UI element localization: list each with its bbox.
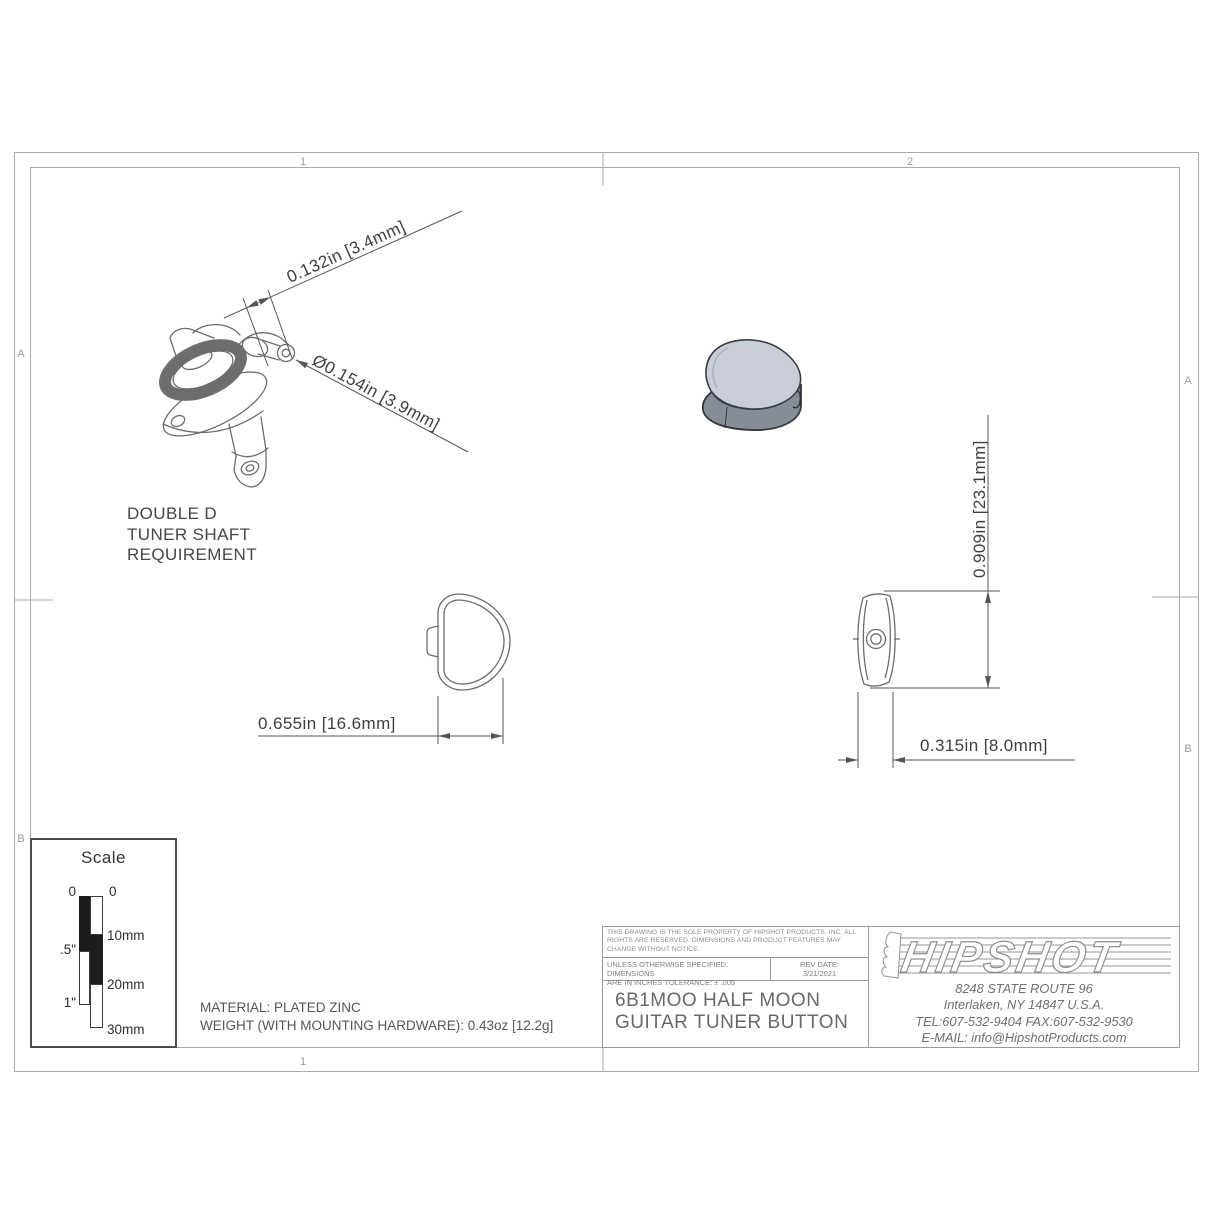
scale-label-mm-10: 10mm [107,928,145,943]
hipshot-logo-text: HIPSHOT [898,933,1124,981]
scale-mm-bar-20-30 [90,984,103,1028]
address-line-2: Interlaken, NY 14847 U.S.A. [869,997,1179,1013]
hipshot-logo: HIPSHOT [875,929,1175,981]
title-block-company: HIPSHOT 8248 STATE ROUTE 96 Interlaken, … [869,927,1179,1047]
isometric-view [703,340,801,430]
scale-label-inch-1: 1" [46,995,76,1010]
zone-label-left-b: B [17,833,24,845]
scale-label-mm-30: 30mm [107,1022,145,1037]
material-notes: MATERIAL: PLATED ZINC WEIGHT (WITH MOUNT… [200,999,553,1035]
company-address: 8248 STATE ROUTE 96 Interlaken, NY 14847… [869,981,1179,1047]
zone-label-right-a: A [1184,375,1192,387]
scale-mm-bar-0-10 [90,896,103,935]
scale-label-mm-0: 0 [109,884,117,899]
shaft-requirement-note: DOUBLE D TUNER SHAFT REQUIREMENT [127,504,257,566]
dim-text-shaft-diameter: Ø0.154in [3.9mm] [309,351,443,434]
dim-text-shaft-flat-width: 0.132in [3.4mm] [284,217,408,287]
dim-text-button-thickness: 0.315in [8.0mm] [920,736,1048,755]
scale-label-mm-20: 20mm [107,977,145,992]
scale-label-inch-half: .5" [40,942,76,957]
front-view [427,594,510,690]
tuner-sketch [150,325,294,487]
phone-line: TEL:607-532-9404 FAX:607-532-9530 [869,1014,1179,1030]
rev-date: REV DATE: 3/21/2021 [771,958,868,980]
legal-notice: THIS DRAWING IS THE SOLE PROPERTY OF HIP… [603,927,868,958]
title-block: THIS DRAWING IS THE SOLE PROPERTY OF HIP… [602,926,1180,1048]
address-line-1: 8248 STATE ROUTE 96 [869,981,1179,997]
spec-row: UNLESS OTHERWISE SPECIFIED: DIMENSIONS A… [603,958,868,981]
dim-shaft-flat-width: 0.132in [3.4mm] [224,211,462,366]
zone-label-bottom-1: 1 [300,1056,306,1068]
dim-text-button-length: 0.909in [23.1mm] [970,440,989,578]
dim-button-thickness: 0.315in [8.0mm] [838,692,1075,768]
zone-label-left-a: A [17,348,25,360]
tolerance-spec: UNLESS OTHERWISE SPECIFIED: DIMENSIONS A… [603,958,771,980]
part-title: 6B1MOO HALF MOON GUITAR TUNER BUTTON [603,981,868,1047]
drawing-sheet: 1 2 1 A B A B [0,0,1214,1214]
scale-label-inch-0: 0 [52,884,76,899]
title-block-left: THIS DRAWING IS THE SOLE PROPERTY OF HIP… [603,927,869,1047]
dim-button-width: 0.655in [16.6mm] [258,678,503,744]
zone-label-right-b: B [1184,743,1191,755]
scale-mm-bar-10-20 [90,935,103,984]
scale-inch-bar-upper [79,896,90,951]
email-line: E-MAIL: info@HipshotProducts.com [869,1030,1179,1046]
zone-label-top-1: 1 [300,156,306,168]
scale-box: Scale 0 .5" 1" 0 10mm 20mm 30mm [30,838,177,1048]
scale-title: Scale [32,848,175,868]
scale-inch-bar-lower [79,951,90,1005]
side-view [853,594,900,686]
material-note: MATERIAL: PLATED ZINC [200,999,553,1017]
zone-label-top-2: 2 [907,156,913,168]
weight-note: WEIGHT (WITH MOUNTING HARDWARE): 0.43oz … [200,1017,553,1035]
dim-text-button-width: 0.655in [16.6mm] [258,714,396,733]
dim-shaft-diameter: Ø0.154in [3.9mm] [296,351,468,452]
